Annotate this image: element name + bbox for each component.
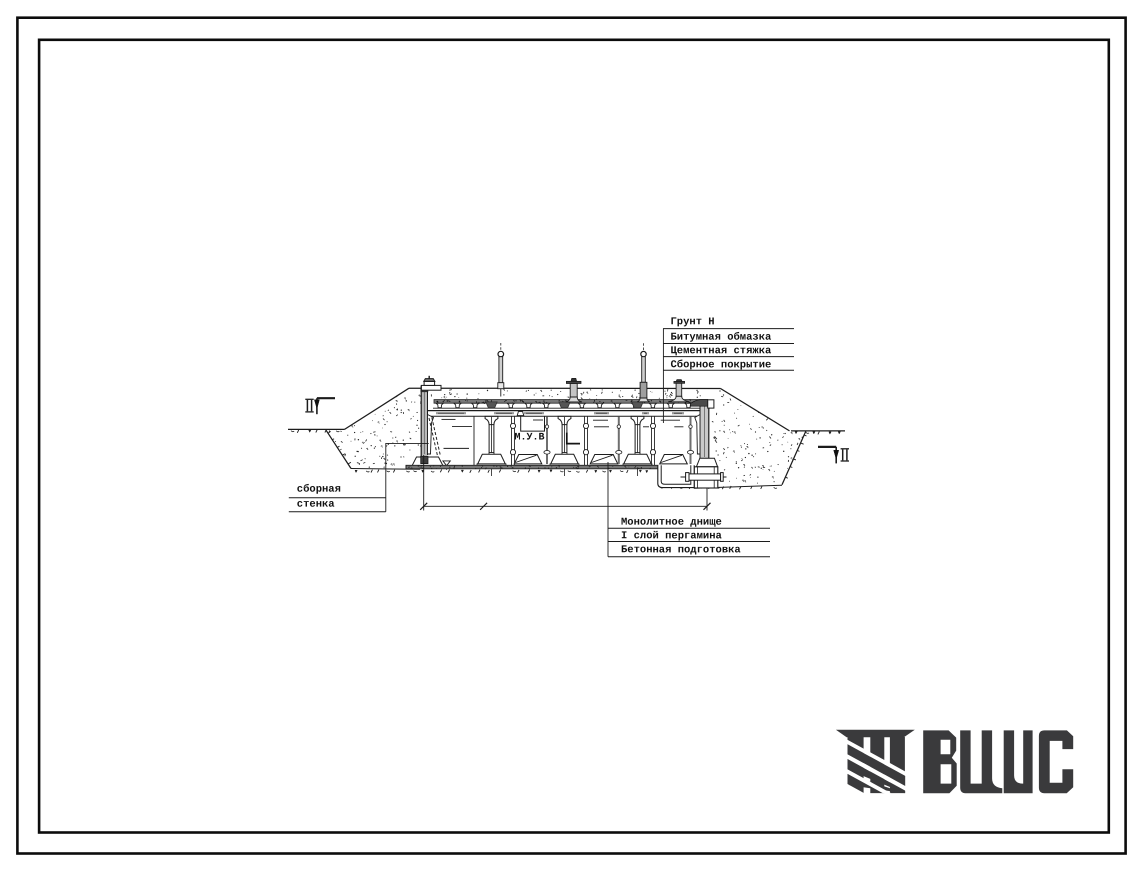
svg-text:Сборное покрытие: Сборное покрытие <box>670 358 771 371</box>
svg-text:стенка: стенка <box>297 499 336 511</box>
svg-text:Монолитное днище: Монолитное днище <box>621 517 722 529</box>
svg-text:Цементная стяжка: Цементная стяжка <box>670 345 772 357</box>
svg-text:I слой пергамина: I слой пергамина <box>621 530 723 542</box>
svg-text:М.У.В: М.У.В <box>514 433 544 444</box>
svg-text:Грунт Н: Грунт Н <box>670 316 714 328</box>
svg-text:Битумная обмазка: Битумная обмазка <box>670 331 772 344</box>
svg-text:сборная: сборная <box>297 483 341 496</box>
svg-text:Бетонная подготовка: Бетонная подготовка <box>621 544 741 556</box>
